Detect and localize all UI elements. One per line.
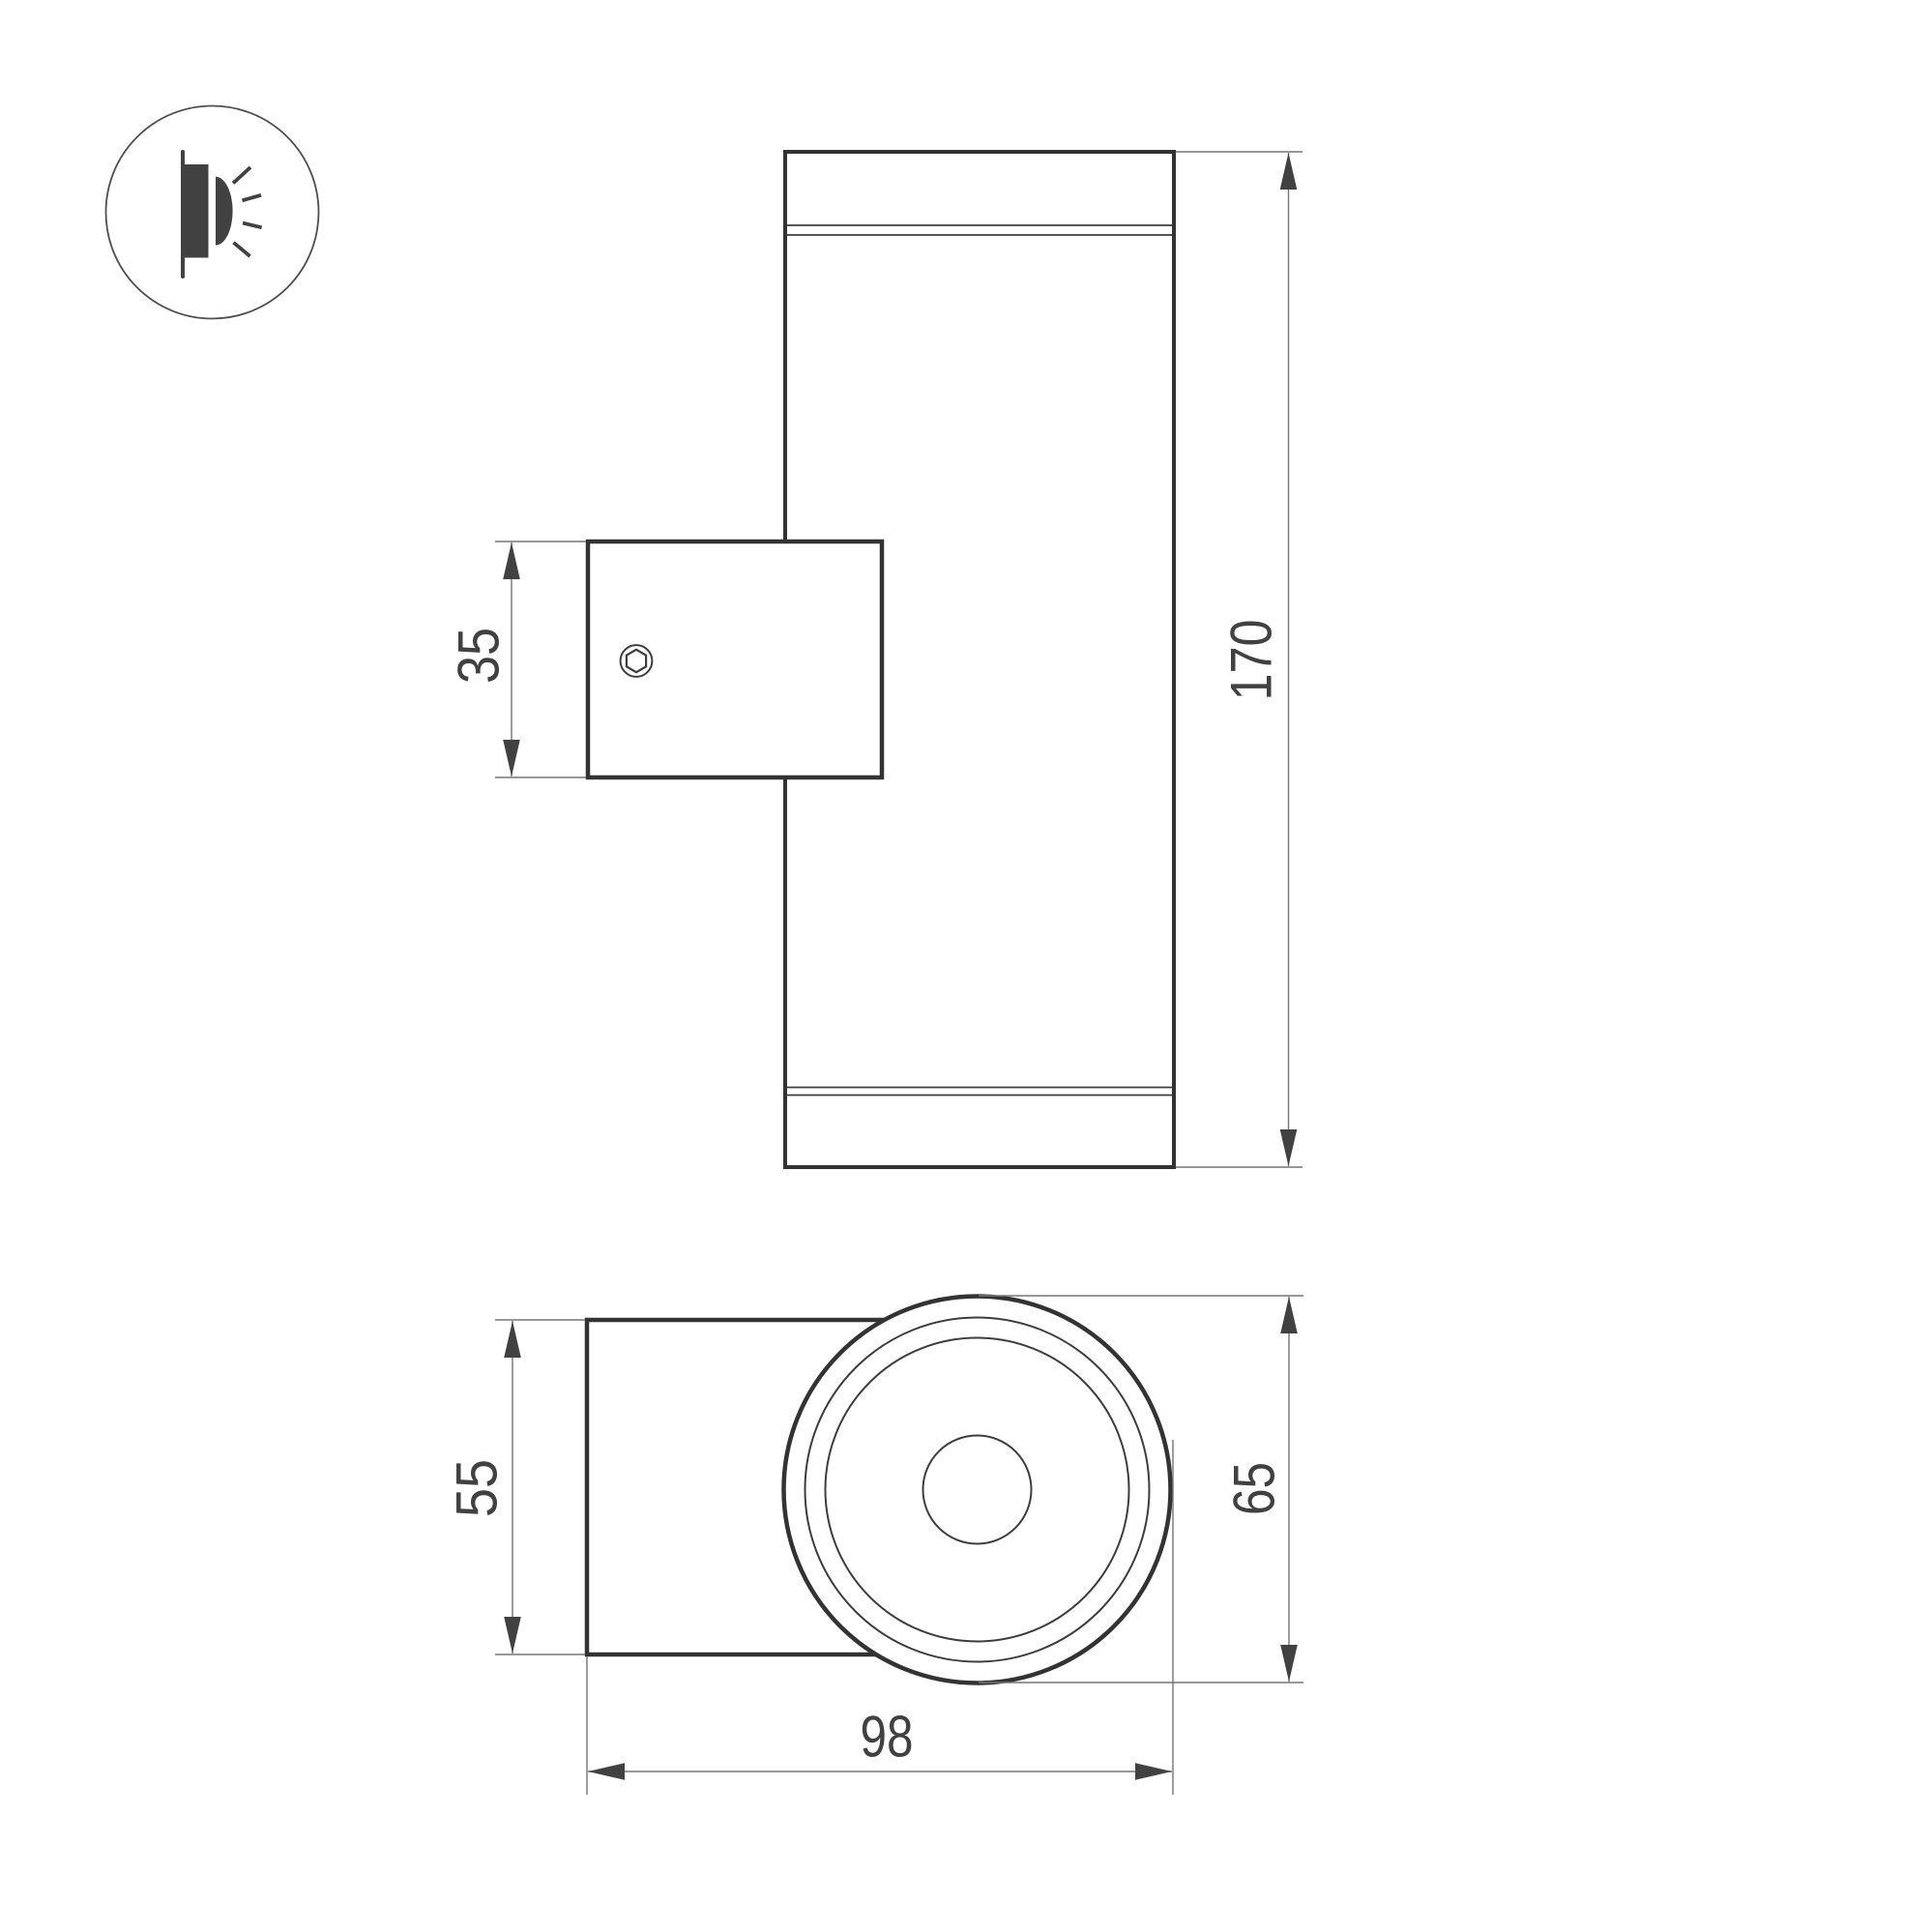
svg-text:98: 98 (861, 1705, 914, 1770)
svg-text:65: 65 (1222, 1462, 1287, 1515)
svg-text:35: 35 (447, 628, 512, 684)
svg-text:55: 55 (445, 1459, 510, 1517)
svg-text:170: 170 (1219, 620, 1284, 701)
